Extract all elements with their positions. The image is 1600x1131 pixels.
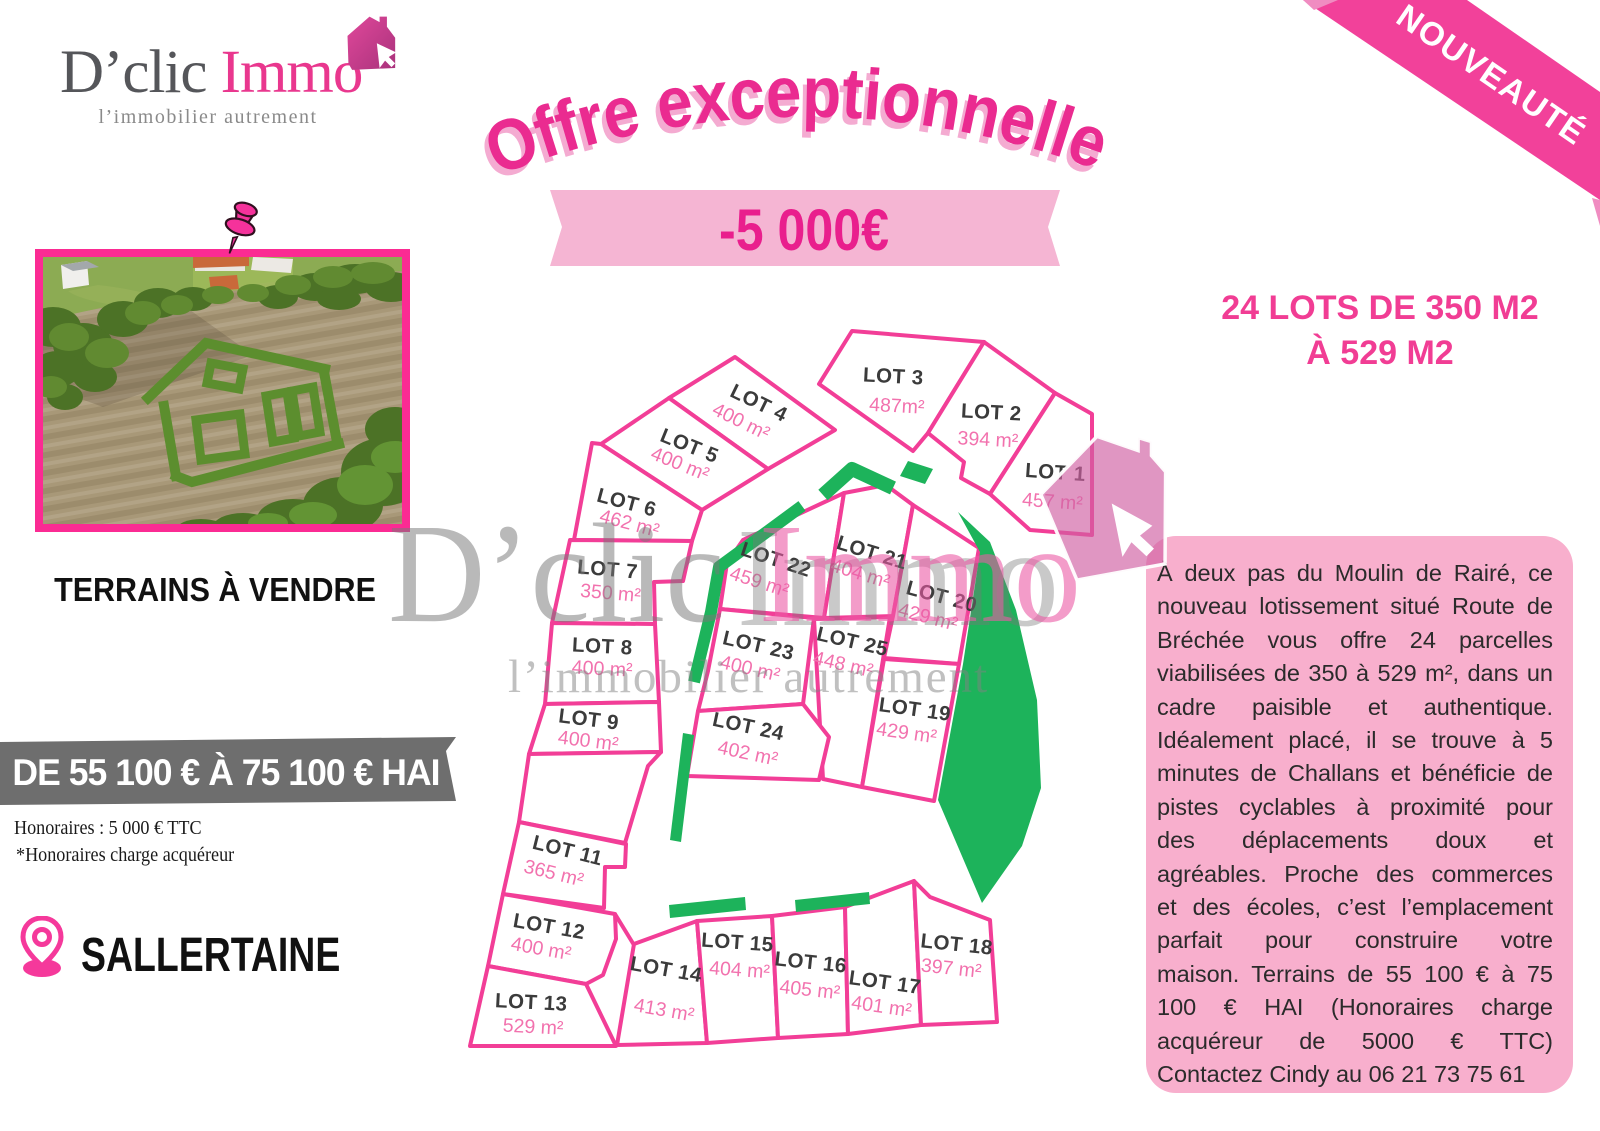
svg-text:529 m²: 529 m² (502, 1015, 564, 1040)
svg-text:404 m²: 404 m² (708, 957, 771, 983)
svg-text:394 m²: 394 m² (957, 427, 1019, 452)
svg-text:487m²: 487m² (869, 394, 926, 419)
svg-text:LOT 13: LOT 13 (495, 989, 569, 1016)
svg-text:LOT 3: LOT 3 (862, 363, 924, 389)
svg-text:LOT 2: LOT 2 (960, 399, 1022, 425)
